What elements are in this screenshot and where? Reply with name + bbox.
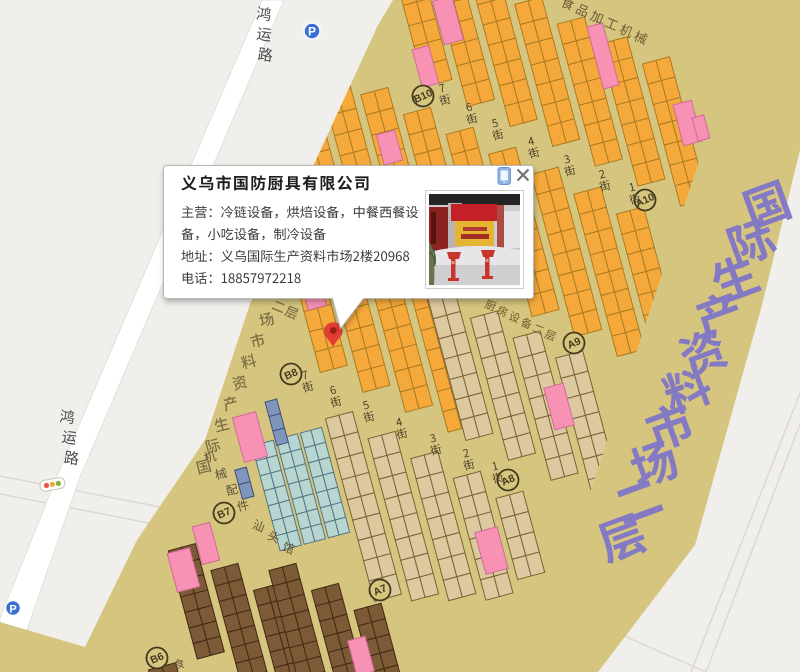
svg-text:P: P — [9, 604, 16, 616]
svg-text:P: P — [308, 25, 316, 39]
